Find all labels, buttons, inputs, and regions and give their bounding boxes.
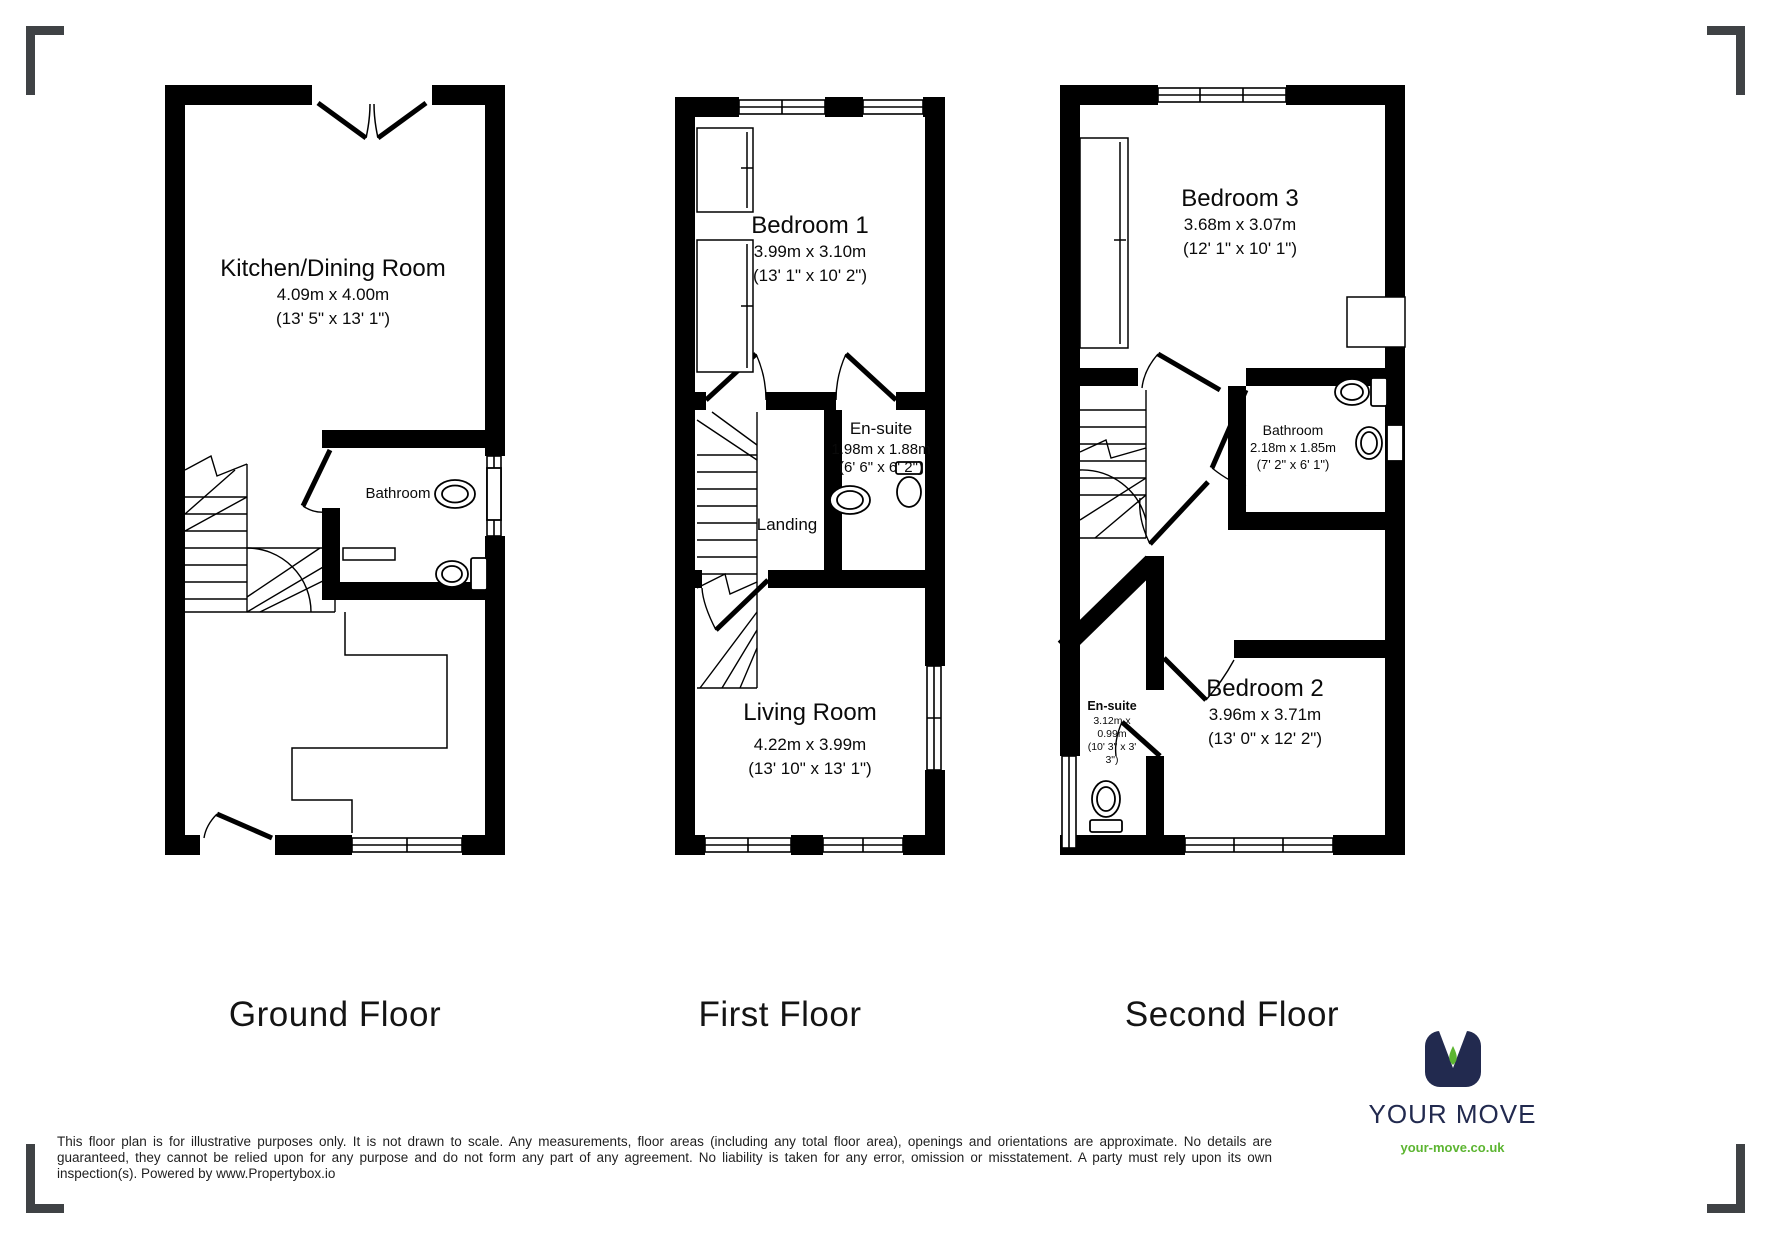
- ground-floor-plan: [165, 85, 505, 855]
- your-move-logo-icon: [1424, 1030, 1482, 1088]
- room-dim-second-ensuite-m1: 3.12m x: [1093, 716, 1130, 728]
- floor-title-ground: Ground Floor: [229, 996, 441, 1035]
- room-dim-second-bathroom-metric: 2.18m x 1.85m: [1250, 441, 1336, 455]
- ground-windows: [352, 456, 501, 852]
- ground-walls: [165, 85, 505, 855]
- ground-bathroom-door: [303, 450, 331, 512]
- first-sink-icon: [830, 486, 870, 514]
- room-dim-bedroom3-metric: 3.68m x 3.07m: [1184, 216, 1296, 235]
- first-ensuite-door: [836, 354, 896, 400]
- room-dim-first-ensuite-metric: 1.98m x 1.88m: [831, 442, 930, 459]
- second-landing-doors: [1140, 354, 1220, 544]
- your-move-website: your-move.co.uk: [1360, 1140, 1545, 1155]
- room-dim-living-imperial: (13' 10" x 13' 1"): [748, 760, 871, 779]
- your-move-logo: YOUR MOVE your-move.co.uk: [1360, 1030, 1545, 1155]
- room-label-first-ensuite: En-suite: [850, 420, 912, 439]
- ground-toilet-icon: [436, 558, 487, 590]
- ground-staircase: [185, 456, 335, 612]
- floor-title-second: Second Floor: [1125, 996, 1339, 1035]
- second-staircase: [1080, 390, 1146, 538]
- room-label-living: Living Room: [743, 700, 876, 726]
- ground-sink-icon: [435, 468, 501, 520]
- first-staircase: [697, 412, 757, 688]
- room-label-ground-bathroom: Bathroom: [365, 486, 430, 503]
- room-dim-bedroom1-metric: 3.99m x 3.10m: [754, 243, 866, 262]
- first-wardrobes: [697, 128, 753, 372]
- room-dim-bedroom1-imperial: (13' 1" x 10' 2"): [753, 267, 867, 286]
- second-ensuite-toilet-icon: [1090, 781, 1122, 832]
- room-dim-kitchen-metric: 4.09m x 4.00m: [277, 286, 389, 305]
- room-label-second-ensuite: En-suite: [1087, 700, 1136, 714]
- ground-entrance-door: [204, 814, 272, 838]
- room-dim-second-ensuite-i2: 3"): [1105, 755, 1118, 767]
- room-dim-bedroom2-metric: 3.96m x 3.71m: [1209, 706, 1321, 725]
- room-dim-bedroom2-imperial: (13' 0" x 12' 2"): [1208, 730, 1322, 749]
- room-dim-living-metric: 4.22m x 3.99m: [754, 736, 866, 755]
- ground-french-door: [318, 103, 426, 138]
- room-dim-second-bathroom-imperial: (7' 2" x 6' 1"): [1257, 458, 1330, 472]
- your-move-logo-text: YOUR MOVE: [1360, 1099, 1545, 1130]
- room-label-second-bathroom: Bathroom: [1263, 423, 1324, 438]
- room-label-bedroom2: Bedroom 2: [1206, 676, 1323, 702]
- room-label-bedroom3: Bedroom 3: [1181, 186, 1298, 212]
- room-label-kitchen: Kitchen/Dining Room: [220, 256, 445, 282]
- floorplan-page: Kitchen/Dining Room 4.09m x 4.00m (13' 5…: [0, 0, 1771, 1239]
- floor-title-first: First Floor: [699, 996, 862, 1035]
- room-dim-kitchen-imperial: (13' 5" x 13' 1"): [276, 310, 390, 329]
- room-dim-second-ensuite-m2: 0.99m: [1097, 729, 1126, 741]
- room-dim-bedroom3-imperial: (12' 1" x 10' 1"): [1183, 240, 1297, 259]
- disclaimer-text: This floor plan is for illustrative purp…: [57, 1134, 1272, 1182]
- room-dim-first-ensuite-imperial: (6' 6" x 6' 2"): [839, 460, 923, 477]
- second-bath-toilet-icon: [1335, 378, 1387, 406]
- room-dim-second-ensuite-i1: (10' 3" x 3': [1088, 742, 1137, 754]
- room-label-bedroom1: Bedroom 1: [751, 213, 868, 239]
- first-living-door: [702, 580, 768, 630]
- second-bath-sink-icon: [1356, 425, 1403, 461]
- room-label-landing: Landing: [757, 516, 818, 535]
